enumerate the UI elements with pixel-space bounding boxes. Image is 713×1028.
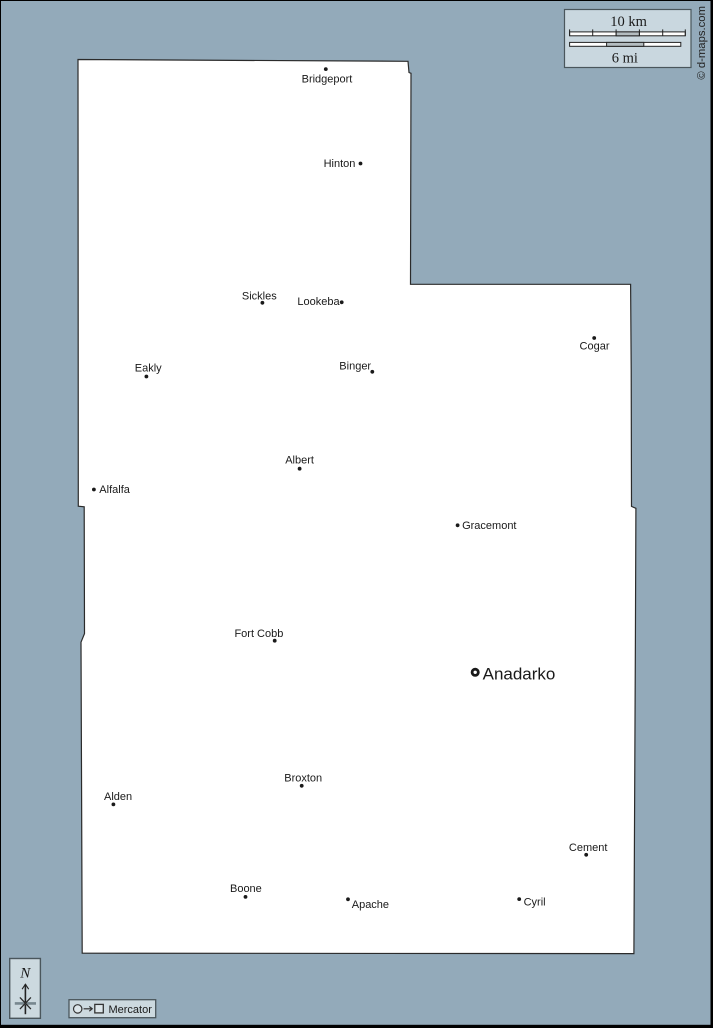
svg-text:Alfalfa: Alfalfa xyxy=(99,484,130,496)
svg-text:Broxton: Broxton xyxy=(284,772,322,784)
svg-text:Mercator: Mercator xyxy=(108,1004,152,1016)
svg-text:Lookeba: Lookeba xyxy=(297,296,340,308)
svg-text:Cogar: Cogar xyxy=(580,340,610,352)
svg-text:Cement: Cement xyxy=(569,842,608,854)
svg-text:6 mi: 6 mi xyxy=(612,51,638,67)
svg-text:Boone: Boone xyxy=(230,883,262,895)
svg-text:10 km: 10 km xyxy=(610,14,647,30)
svg-text:Gracemont: Gracemont xyxy=(462,520,516,532)
svg-text:Eakly: Eakly xyxy=(135,362,162,374)
svg-text:Bridgeport: Bridgeport xyxy=(302,73,353,85)
svg-text:Cyril: Cyril xyxy=(524,896,546,908)
svg-text:Alden: Alden xyxy=(104,791,132,803)
svg-text:Binger: Binger xyxy=(339,360,371,372)
svg-text:Fort Cobb: Fort Cobb xyxy=(234,628,283,640)
svg-text:Sickles: Sickles xyxy=(242,290,277,302)
svg-text:Anadarko: Anadarko xyxy=(483,665,556,684)
svg-text:© d-maps.com: © d-maps.com xyxy=(696,6,708,80)
svg-text:Apache: Apache xyxy=(352,899,389,911)
svg-text:Albert: Albert xyxy=(285,454,314,466)
svg-text:N: N xyxy=(19,965,31,981)
svg-text:Hinton: Hinton xyxy=(324,158,356,170)
